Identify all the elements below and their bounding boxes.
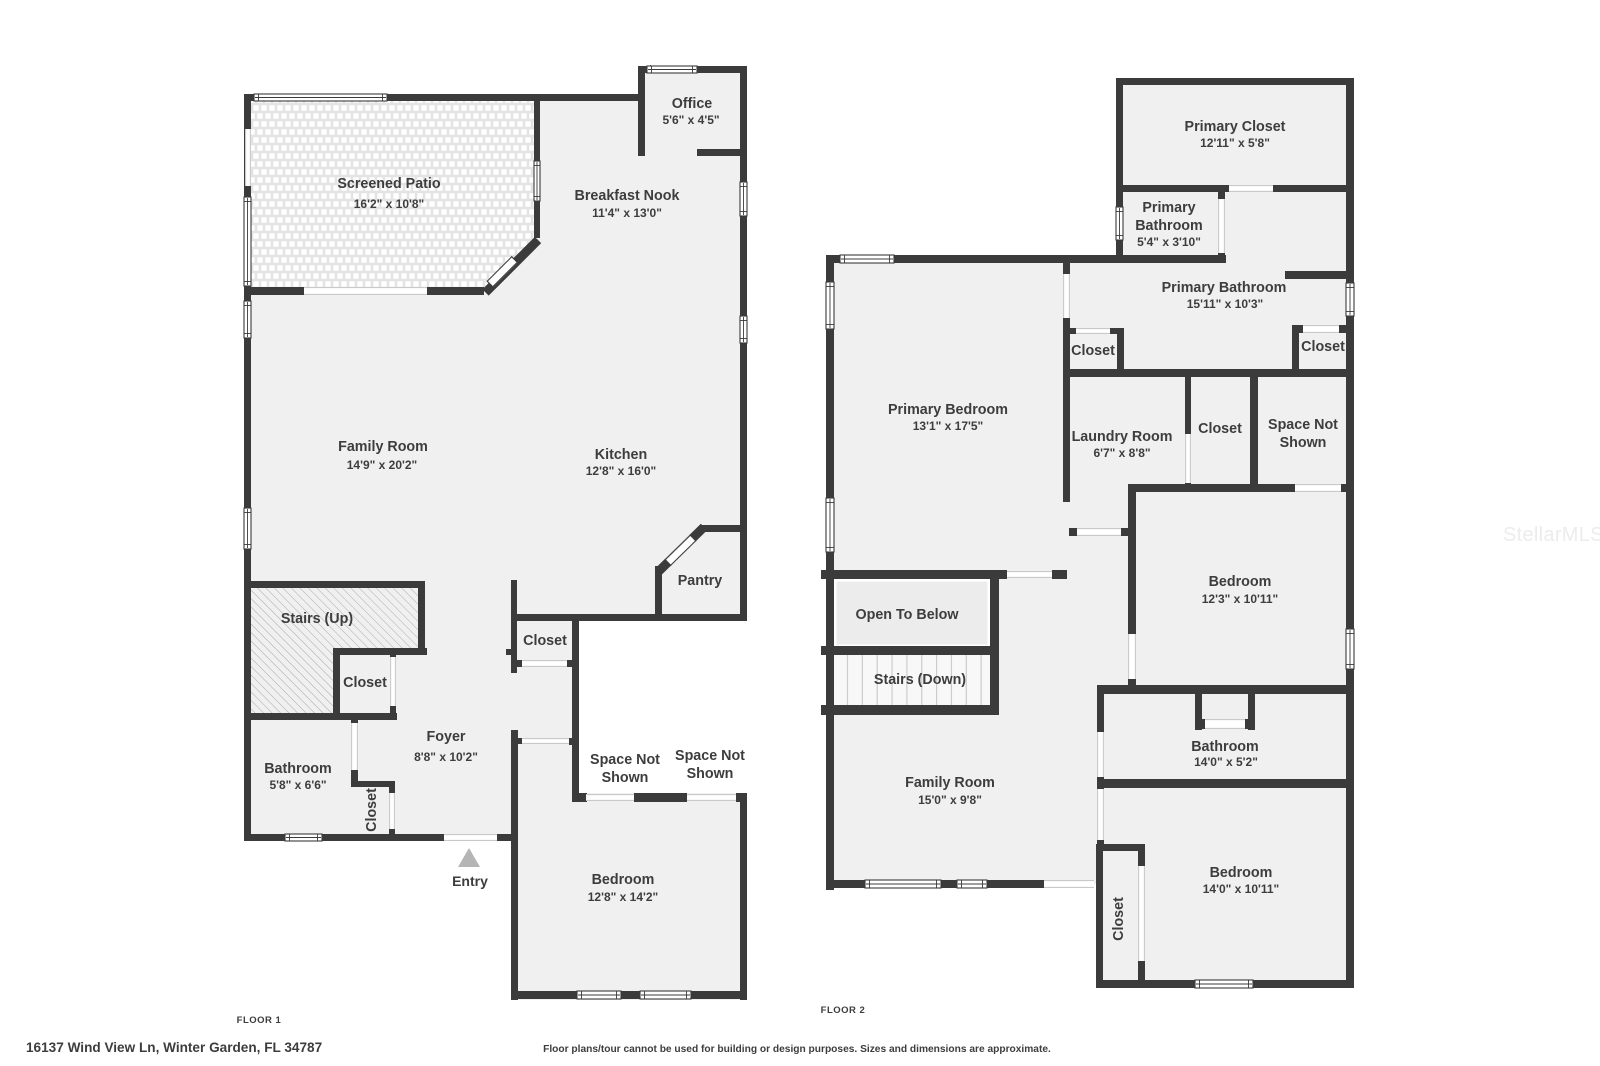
svg-text:Breakfast Nook: Breakfast Nook xyxy=(575,188,680,204)
svg-text:Shown: Shown xyxy=(1280,435,1327,451)
svg-text:Closet: Closet xyxy=(343,675,387,691)
svg-text:Stairs (Up): Stairs (Up) xyxy=(281,611,354,627)
svg-text:16'2" x 10'8": 16'2" x 10'8" xyxy=(354,197,424,211)
svg-text:Floor plans/tour cannot be use: Floor plans/tour cannot be used for buil… xyxy=(543,1044,1051,1055)
svg-text:5'8" x 6'6": 5'8" x 6'6" xyxy=(269,778,326,792)
svg-text:Kitchen: Kitchen xyxy=(595,447,647,463)
svg-text:Bedroom: Bedroom xyxy=(1210,865,1273,881)
svg-text:15'0" x 9'8": 15'0" x 9'8" xyxy=(918,793,982,807)
svg-text:14'9" x 20'2": 14'9" x 20'2" xyxy=(347,458,417,472)
svg-text:Closet: Closet xyxy=(1198,421,1242,437)
svg-text:Office: Office xyxy=(672,96,713,112)
svg-text:Closet: Closet xyxy=(1071,343,1115,359)
svg-text:Primary Bathroom: Primary Bathroom xyxy=(1162,280,1287,296)
svg-text:Bedroom: Bedroom xyxy=(592,872,655,888)
svg-text:11'4" x 13'0": 11'4" x 13'0" xyxy=(592,206,662,220)
svg-text:Family Room: Family Room xyxy=(905,775,995,791)
svg-text:Space Not: Space Not xyxy=(590,752,660,768)
svg-text:StellarMLS: StellarMLS xyxy=(1503,524,1600,546)
svg-text:12'11" x 5'8": 12'11" x 5'8" xyxy=(1200,136,1270,150)
svg-text:FLOOR 2: FLOOR 2 xyxy=(821,1005,866,1016)
svg-text:Bathroom: Bathroom xyxy=(1135,218,1203,234)
svg-text:Primary Closet: Primary Closet xyxy=(1185,119,1286,135)
svg-text:Foyer: Foyer xyxy=(427,729,466,745)
svg-text:Bedroom: Bedroom xyxy=(1209,574,1272,590)
svg-text:14'0" x 10'11": 14'0" x 10'11" xyxy=(1203,882,1279,896)
svg-text:Laundry Room: Laundry Room xyxy=(1072,429,1173,445)
svg-text:Bathroom: Bathroom xyxy=(1191,739,1259,755)
svg-text:Bathroom: Bathroom xyxy=(264,761,332,777)
svg-text:Screened Patio: Screened Patio xyxy=(337,176,441,192)
svg-text:Family Room: Family Room xyxy=(338,439,428,455)
svg-text:13'1" x 17'5": 13'1" x 17'5" xyxy=(913,419,983,433)
svg-text:12'3" x 10'11": 12'3" x 10'11" xyxy=(1202,592,1278,606)
svg-text:15'11" x 10'3": 15'11" x 10'3" xyxy=(1187,297,1263,311)
svg-text:Pantry: Pantry xyxy=(678,573,723,589)
svg-text:Entry: Entry xyxy=(452,873,488,889)
svg-text:Shown: Shown xyxy=(687,766,734,782)
svg-text:Space Not: Space Not xyxy=(1268,417,1338,433)
svg-text:5'4" x 3'10": 5'4" x 3'10" xyxy=(1137,235,1201,249)
svg-text:5'6" x 4'5": 5'6" x 4'5" xyxy=(662,113,719,127)
svg-text:14'0" x 5'2": 14'0" x 5'2" xyxy=(1194,755,1258,769)
svg-text:6'7" x 8'8": 6'7" x 8'8" xyxy=(1093,446,1150,460)
svg-text:16137 Wind View Ln, Winter Gar: 16137 Wind View Ln, Winter Garden, FL 34… xyxy=(26,1040,322,1055)
svg-text:Stairs (Down): Stairs (Down) xyxy=(874,672,966,688)
svg-text:Open To Below: Open To Below xyxy=(856,607,960,623)
svg-text:12'8" x 14'2": 12'8" x 14'2" xyxy=(588,890,658,904)
svg-text:Closet: Closet xyxy=(1301,339,1345,355)
svg-text:Space Not: Space Not xyxy=(675,748,745,764)
svg-text:Primary: Primary xyxy=(1142,200,1195,216)
svg-text:12'8" x 16'0": 12'8" x 16'0" xyxy=(586,464,656,478)
svg-text:8'8" x 10'2": 8'8" x 10'2" xyxy=(414,750,478,764)
svg-text:FLOOR 1: FLOOR 1 xyxy=(237,1015,282,1026)
svg-text:Closet: Closet xyxy=(364,788,380,832)
svg-text:Closet: Closet xyxy=(1111,897,1127,941)
svg-text:Closet: Closet xyxy=(523,633,567,649)
svg-text:Shown: Shown xyxy=(602,770,649,786)
svg-text:Primary Bedroom: Primary Bedroom xyxy=(888,402,1008,418)
